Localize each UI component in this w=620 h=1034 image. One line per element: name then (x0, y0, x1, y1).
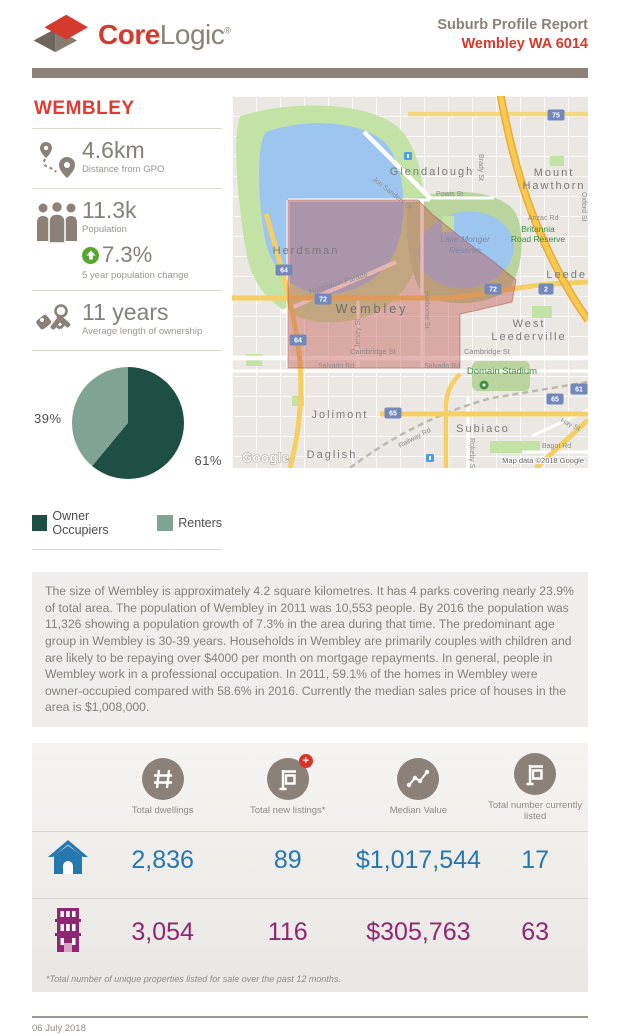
svg-text:Britannia: Britannia (521, 224, 555, 234)
distance-stat: 4.6km Distance from GPO (32, 128, 222, 188)
units-total-dwellings: 3,054 (104, 918, 221, 947)
svg-text:72: 72 (319, 297, 327, 304)
svg-text:Salvado Rd: Salvado Rd (318, 363, 354, 370)
svg-text:Hawthorn: Hawthorn (522, 180, 585, 192)
svg-text:72: 72 (489, 287, 497, 294)
svg-text:64: 64 (280, 268, 288, 275)
suburb-name: WEMBLEY (34, 98, 222, 120)
people-icon (32, 201, 82, 243)
svg-text:Powis St: Powis St (436, 191, 463, 198)
suburb-map: 64 72 64 72 65 65 61 75 2 Herdsman (232, 96, 588, 562)
google-logo: Google (242, 450, 290, 465)
footer-rule (32, 1016, 588, 1018)
svg-text:Rokeby St: Rokeby St (468, 438, 475, 468)
corelogic-logo-icon (32, 10, 88, 60)
houses-total-dwellings: 2,836 (104, 846, 221, 875)
legend-item-renters: Renters (157, 515, 222, 531)
svg-text:Subiaco: Subiaco (456, 423, 510, 435)
col-label-total-new-listings: Total new listings* (221, 805, 354, 816)
ownership-label: Average length of ownership (82, 326, 202, 337)
houses-median-value: $1,017,544 (354, 846, 482, 875)
pie-legend: Owner Occupiers Renters (32, 509, 222, 550)
listing-icon (514, 753, 556, 795)
svg-text:65: 65 (551, 397, 559, 404)
population-change-label: 5 year population change (82, 270, 189, 281)
svg-text:Lake Monger: Lake Monger (440, 234, 491, 244)
houses-currently-listed: 17 (482, 846, 588, 875)
brand-core: Core (98, 19, 160, 50)
distance-value: 4.6km (82, 138, 164, 162)
svg-text:Salvado Rd: Salvado Rd (424, 363, 460, 370)
ownership-stat: 11 years Average length of ownership (32, 290, 222, 350)
stats-header-row: Total dwellings + Total new listings* Me… (32, 753, 588, 822)
svg-text:2: 2 (544, 287, 548, 294)
pie-label-renters-pct: 39% (34, 411, 62, 426)
ownership-value: 11 years (82, 300, 202, 324)
pie-chart (72, 367, 184, 479)
svg-text:75: 75 (552, 113, 560, 120)
report-title: Suburb Profile Report (437, 16, 588, 35)
trend-icon (397, 758, 439, 800)
header-titles: Suburb Profile Report Wembley WA 6014 (437, 16, 588, 54)
population-value: 11.3k (82, 198, 189, 222)
suburb-title: Wembley WA 6014 (437, 35, 588, 54)
stats-table: Total dwellings + Total new listings* Me… (32, 743, 588, 992)
svg-text:Glendalough: Glendalough (390, 166, 474, 178)
svg-text:Anzac Rd: Anzac Rd (528, 215, 558, 222)
units-row: 3,054 116 $305,763 63 (32, 899, 588, 966)
route-pins-icon (32, 141, 82, 179)
svg-text:Leederville: Leederville (491, 331, 566, 343)
pie-label-owners-pct: 61% (194, 453, 222, 468)
up-arrow-icon (82, 247, 99, 264)
svg-text:Road Reserve: Road Reserve (511, 234, 566, 244)
svg-text:64: 64 (294, 338, 302, 345)
svg-text:Harborne St: Harborne St (423, 291, 430, 329)
hash-icon (142, 758, 184, 800)
suburb-description: The size of Wembley is approximately 4.2… (32, 572, 588, 727)
svg-text:Daglish: Daglish (307, 449, 358, 461)
plus-badge: + (299, 754, 313, 768)
population-change: 7.3% (82, 242, 189, 268)
legend-item-owner-occupiers: Owner Occupiers (32, 509, 145, 537)
map-attribution: Map data ©2018 Google (502, 456, 584, 465)
footer-date: 06 July 2018 (32, 1023, 588, 1034)
col-label-currently-listed: Total number currently listed (482, 800, 588, 822)
houses-new-listings: 89 (221, 846, 354, 875)
svg-text:61: 61 (575, 387, 583, 394)
svg-text:Jolimont: Jolimont (312, 409, 369, 421)
population-label: Population (82, 224, 189, 235)
distance-label: Distance from GPO (82, 164, 164, 175)
svg-text:Oxford St: Oxford St (580, 192, 587, 222)
header: CoreLogic® Suburb Profile Report Wembley… (32, 10, 588, 60)
units-currently-listed: 63 (482, 918, 588, 947)
svg-text:Domain Stadium: Domain Stadium (467, 366, 537, 377)
units-median-value: $305,763 (354, 918, 482, 947)
svg-text:Cambridge St: Cambridge St (464, 347, 511, 356)
svg-text:Wembley: Wembley (336, 302, 409, 316)
header-rule (32, 68, 588, 78)
brand-logic: Logic (160, 19, 224, 50)
svg-text:West: West (513, 318, 546, 330)
svg-text:Cambridge St: Cambridge St (350, 347, 397, 356)
tenure-pie-section: 39% 61% Owner Occupiers Renters (32, 350, 222, 562)
listing-plus-icon: + (267, 758, 309, 800)
svg-text:Jersey St: Jersey St (355, 319, 362, 348)
keys-icon (32, 303, 82, 341)
svg-text:Mount: Mount (534, 167, 575, 179)
col-label-median-value: Median Value (354, 805, 482, 816)
svg-text:Herdsman: Herdsman (273, 245, 340, 257)
building-icon (53, 907, 83, 953)
svg-text:Bagot Rd: Bagot Rd (542, 443, 571, 450)
population-change-value: 7.3% (102, 242, 152, 268)
legend-label-owner-occupiers: Owner Occupiers (52, 509, 145, 537)
legend-swatch-light (157, 515, 173, 531)
svg-text:65: 65 (389, 411, 397, 418)
corelogic-wordmark: CoreLogic® (98, 19, 230, 51)
map-base: 64 72 64 72 65 65 61 75 2 Herdsman (232, 96, 588, 468)
houses-row: 2,836 89 $1,017,544 17 (32, 832, 588, 889)
population-stat: 11.3k Population 7.3% 5 year population … (32, 188, 222, 290)
svg-text:Leede: Leede (546, 269, 587, 281)
stats-footnote: *Total number of unique properties liste… (46, 974, 588, 984)
svg-text:Reserve: Reserve (449, 245, 481, 255)
suburb-summary-panel: WEMBLEY 4.6km Distance from GPO (32, 96, 222, 562)
report-page: CoreLogic® Suburb Profile Report Wembley… (32, 0, 588, 1034)
svg-text:Brady St: Brady St (477, 154, 484, 181)
brand-reg-mark: ® (224, 26, 230, 36)
legend-swatch-dark (32, 515, 47, 531)
units-new-listings: 116 (221, 918, 354, 947)
col-label-total-dwellings: Total dwellings (104, 805, 221, 816)
legend-label-renters: Renters (178, 516, 222, 530)
corelogic-logo: CoreLogic® (32, 10, 230, 60)
